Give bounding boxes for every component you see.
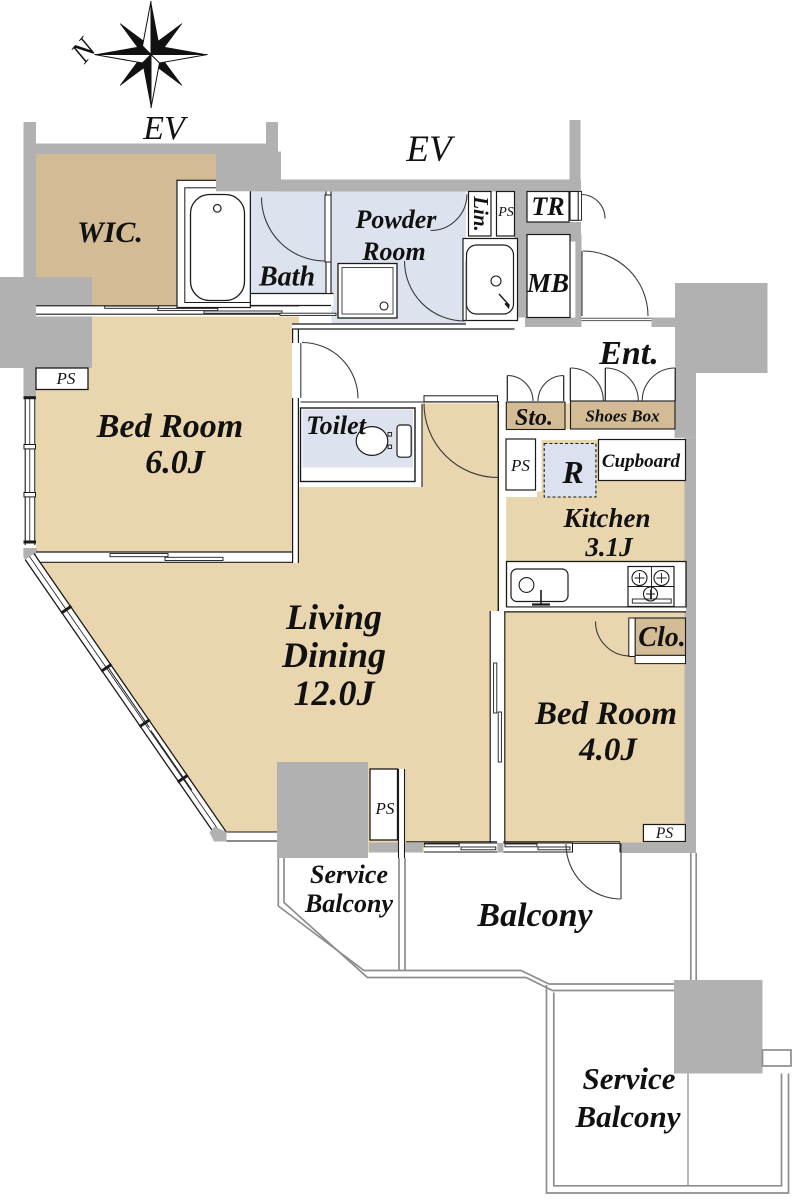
svg-text:Toilet: Toilet [306, 411, 366, 440]
svg-text:Ent.: Ent. [598, 335, 659, 372]
svg-text:Shoes Box: Shoes Box [585, 407, 660, 426]
svg-text:Room: Room [361, 237, 426, 266]
svg-text:Bed Room: Bed Room [96, 408, 243, 445]
svg-text:PS: PS [510, 456, 530, 475]
svg-text:Bath: Bath [258, 262, 315, 293]
svg-text:Bed Room: Bed Room [534, 696, 677, 732]
svg-text:MB: MB [526, 268, 569, 298]
svg-text:Balcony: Balcony [574, 1099, 680, 1134]
svg-text:Service: Service [583, 1061, 676, 1096]
svg-text:PS: PS [56, 369, 76, 388]
svg-text:PS: PS [497, 205, 514, 220]
svg-text:12.0J: 12.0J [294, 673, 376, 713]
svg-text:Balcony: Balcony [304, 889, 394, 918]
svg-text:4.0J: 4.0J [578, 732, 638, 768]
svg-text:EV: EV [142, 110, 189, 147]
svg-text:3.1J: 3.1J [584, 532, 634, 562]
svg-text:Service: Service [310, 860, 388, 889]
svg-text:Sto.: Sto. [515, 405, 553, 431]
svg-text:Dining: Dining [281, 635, 386, 675]
svg-text:Lin.: Lin. [469, 195, 493, 232]
svg-text:6.0J: 6.0J [145, 444, 206, 481]
svg-text:Cupboard: Cupboard [602, 451, 681, 472]
svg-text:Clo.: Clo. [638, 622, 685, 653]
svg-text:PS: PS [375, 799, 395, 818]
svg-text:Kitchen: Kitchen [562, 503, 650, 533]
svg-text:Powder: Powder [355, 205, 438, 234]
svg-text:TR: TR [531, 192, 564, 221]
svg-text:PS: PS [655, 825, 673, 842]
svg-text:Living: Living [285, 597, 382, 637]
svg-text:R: R [561, 454, 583, 490]
svg-text:WIC.: WIC. [77, 216, 143, 249]
svg-text:Balcony: Balcony [476, 897, 593, 934]
svg-text:EV: EV [405, 129, 456, 170]
